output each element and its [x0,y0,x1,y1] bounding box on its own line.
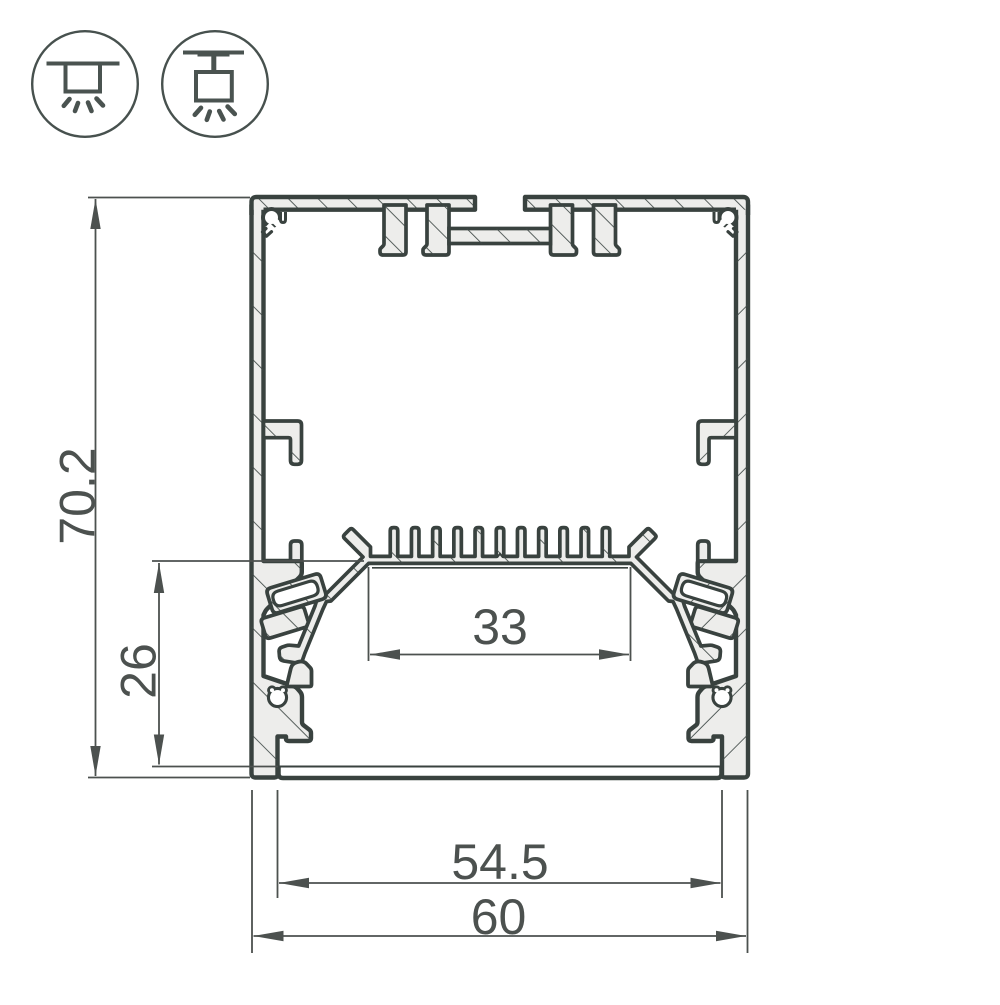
svg-text:60: 60 [471,889,527,945]
svg-text:33: 33 [472,599,528,655]
svg-text:70.2: 70.2 [50,447,106,544]
svg-text:54.5: 54.5 [451,834,548,890]
svg-text:26: 26 [111,643,167,699]
